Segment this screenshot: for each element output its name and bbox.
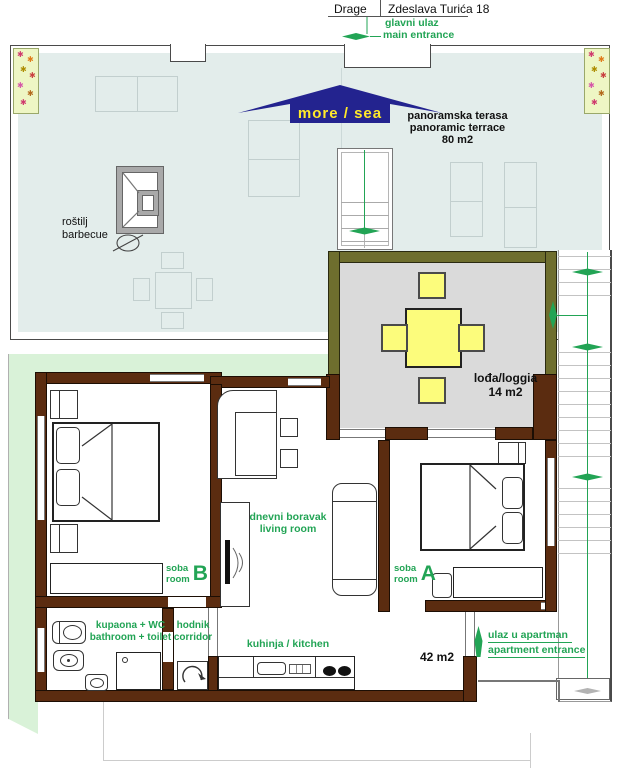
sliding-door-living [340, 429, 385, 438]
divider-line [59, 525, 60, 552]
street-address: Zdeslava Turića 18 [388, 2, 489, 16]
boundary-line [103, 702, 104, 760]
armrest-line [333, 579, 376, 580]
room-b-label-en: room [166, 574, 190, 585]
bidet-basin [90, 678, 104, 688]
divider-line [315, 657, 316, 677]
room-a-label-hr: soba [394, 563, 418, 574]
loggia-wall-left [328, 251, 340, 377]
sun-lounger-outline [450, 162, 483, 237]
side-table [280, 449, 298, 468]
nightstand [50, 524, 78, 553]
terrace-label-hr: panoramska terasa [400, 110, 515, 122]
kitchen-label: kuhinja / kitchen [232, 638, 344, 650]
stove-burner [338, 666, 351, 676]
window-room-a-north [428, 429, 495, 438]
wall-notch [170, 44, 206, 62]
wall-room-a-west [378, 440, 390, 612]
terrace-label: panoramska terasa panoramic terrace 80 m… [400, 110, 515, 146]
drying-rack [289, 664, 311, 674]
boundary-line [530, 733, 531, 768]
apartment-entrance-label-en: apartment entrance [488, 644, 585, 658]
loggia-chair [418, 272, 446, 299]
divider-line [451, 201, 482, 202]
barbecue-label-hr: roštilj [62, 216, 88, 228]
loggia-wall-pier [385, 427, 428, 440]
entrance-arrow-icon [342, 33, 370, 40]
flower-icon: ✱ [20, 66, 27, 74]
divider-line [137, 77, 138, 111]
flower-icon: ✱ [588, 82, 595, 90]
shower-drain [122, 657, 128, 663]
header-divider [380, 0, 381, 16]
entrance-door [465, 612, 475, 656]
apartment-entrance-label-hr: ulaz u apartman [488, 629, 572, 643]
kitchen-sink [257, 662, 286, 675]
flower-icon: ✱ [600, 72, 607, 80]
sun-lounger-outline [248, 120, 300, 197]
window-room-a-east [547, 458, 555, 546]
kitchen-counter [218, 656, 355, 690]
window-bathroom-west [37, 628, 45, 672]
wall-south [35, 690, 465, 702]
room-b-letter: B [193, 563, 208, 585]
pillow [56, 469, 80, 506]
flower-icon: ✱ [591, 99, 598, 107]
flower-icon: ✱ [29, 72, 36, 80]
floor-plan: ✱✱✱✱✱✱✱ ✱✱✱✱✱✱✱ [0, 0, 621, 768]
terrace-chair-outline [161, 312, 184, 329]
wall-room-a-south [425, 600, 557, 612]
rack-line [296, 665, 297, 673]
room-b-label: soba room B [166, 563, 208, 585]
terrace-chair-outline [133, 278, 150, 301]
stair-tread [341, 228, 389, 229]
window-living-north [288, 378, 321, 386]
stair-flight [558, 256, 611, 306]
loggia-area: 14 m2 [448, 385, 563, 399]
barbecue-grill [138, 191, 158, 215]
main-entrance-label-hr: glavni ulaz [385, 17, 439, 29]
terrace-label-en: panoramic terrace [400, 122, 515, 134]
divider-line [249, 159, 299, 160]
corridor-label-hr: hodnik [169, 620, 217, 632]
stove-burner [323, 666, 336, 676]
loggia-name: lođa/loggia [448, 371, 563, 385]
living-room-label-hr: dnevni boravak [232, 511, 344, 523]
side-table [280, 418, 298, 437]
wardrobe-room-b [50, 563, 163, 594]
loggia-wall-top [328, 251, 557, 263]
room-a-letter: A [421, 563, 436, 585]
flower-icon: ✱ [17, 51, 24, 59]
loggia-chair [418, 377, 446, 404]
sofa [332, 483, 377, 596]
rack-line [302, 665, 303, 673]
flower-icon: ✱ [17, 82, 24, 90]
flower-bed: ✱✱✱✱✱✱✱ [13, 48, 39, 114]
staircase-inner-outline [341, 152, 389, 246]
wall-entrance-pier [463, 656, 477, 702]
divider-line [518, 443, 519, 463]
nightstand [498, 442, 526, 464]
flower-icon: ✱ [588, 51, 595, 59]
living-room-label: dnevni boravak living room [232, 511, 344, 535]
tap-dot [67, 659, 70, 662]
washing-machine [177, 661, 208, 690]
sea-direction-label: more / sea [290, 105, 390, 122]
terrace-area: 80 m2 [400, 134, 515, 146]
terrace-chair-outline [161, 252, 184, 269]
terrace-table-outline [155, 272, 192, 309]
pillow [502, 477, 523, 509]
main-entrance-label-en: main entrance [383, 29, 454, 41]
stair-connector-line [556, 315, 587, 316]
room-b-label-hr: soba [166, 563, 190, 574]
main-entrance-notch [344, 44, 431, 68]
flower-icon: ✱ [598, 56, 605, 64]
stair-tread [341, 202, 389, 203]
corner-sofa-seat [235, 412, 277, 476]
loggia-wall-bottom-right [495, 427, 533, 440]
armrest-line [333, 501, 376, 502]
boundary-line [103, 760, 531, 761]
corridor-label-en: corridor [169, 632, 217, 644]
divider-line [505, 207, 536, 208]
room-a-label: soba room A [394, 563, 436, 585]
sun-lounger-outline [95, 76, 178, 112]
pillow [502, 512, 523, 544]
loggia-label: lođa/loggia 14 m2 [448, 371, 563, 399]
terrace-chair-outline [196, 278, 213, 301]
sun-lounger-outline [504, 162, 537, 248]
sink [53, 650, 84, 671]
stair-flight [558, 352, 611, 464]
room-a-label-en: room [394, 574, 418, 585]
flower-icon: ✱ [591, 66, 598, 74]
wardrobe-room-a [453, 567, 543, 598]
counter-line [219, 677, 354, 678]
loggia-chair [381, 324, 408, 352]
pillow [56, 427, 80, 464]
flower-icon: ✱ [27, 56, 34, 64]
apartment-area-label: 42 m2 [420, 651, 454, 663]
stair-tread [341, 241, 389, 242]
flower-bed: ✱✱✱✱✱✱✱ [584, 48, 610, 114]
stair-tread [341, 215, 389, 216]
loggia-chair [458, 324, 485, 352]
flower-icon: ✱ [27, 90, 34, 98]
loggia-table [405, 308, 462, 368]
stair-direction-line [587, 252, 588, 698]
barbecue-label-en: barbecue [62, 229, 108, 241]
flower-icon: ✱ [20, 99, 27, 107]
tv-screen [225, 540, 230, 584]
stair-direction-line [364, 150, 365, 228]
window-room-b-north [150, 374, 204, 382]
divider-line [59, 391, 60, 418]
door-room-b [168, 597, 206, 607]
living-room-label-en: living room [232, 523, 344, 535]
corridor-label: hodnik corridor [169, 620, 217, 644]
shower [116, 652, 161, 690]
stair-flight [558, 488, 611, 560]
flower-icon: ✱ [598, 90, 605, 98]
railing-line [478, 681, 559, 702]
apartment-entrance-arrow-icon [475, 626, 483, 657]
window-room-b-west [37, 416, 45, 520]
street-name: Drage [334, 2, 367, 16]
divider-line [253, 657, 254, 677]
bidet [85, 674, 108, 691]
garden-strip-left [8, 354, 38, 734]
nightstand [50, 390, 78, 419]
stair-bottom-window [556, 678, 610, 700]
loggia-wall-right [545, 251, 557, 377]
